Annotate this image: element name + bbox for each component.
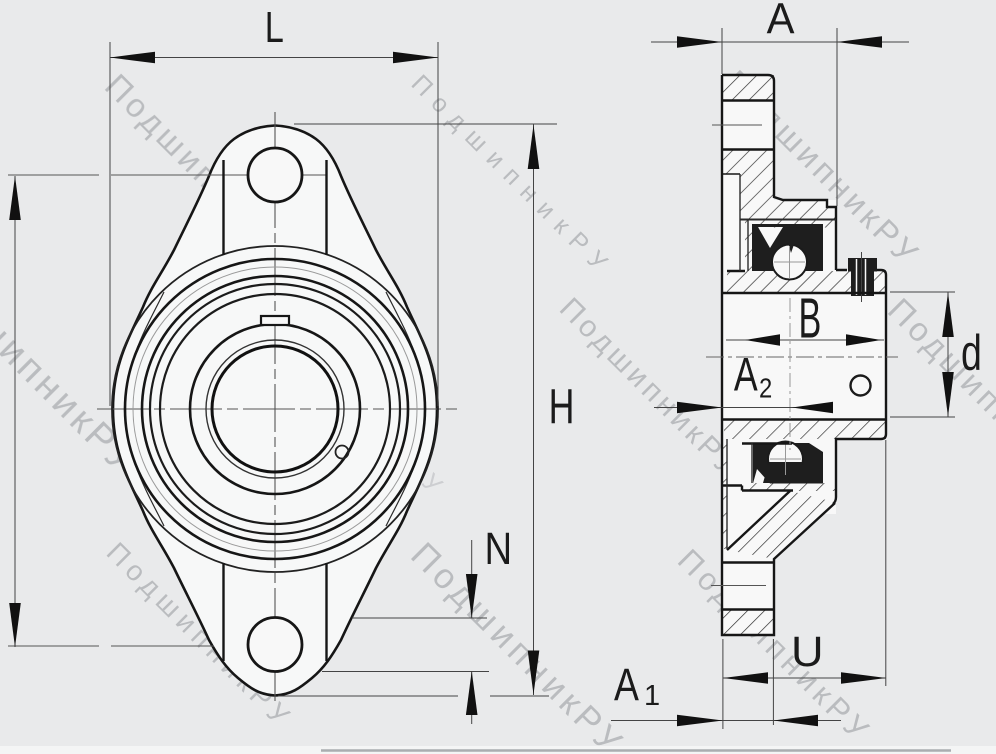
svg-text:1: 1 xyxy=(644,680,660,712)
svg-text:d: d xyxy=(961,326,982,381)
svg-text:L: L xyxy=(265,3,284,52)
svg-text:A: A xyxy=(614,660,639,710)
svg-text:N: N xyxy=(485,523,513,574)
svg-text:U: U xyxy=(791,628,824,676)
svg-text:A: A xyxy=(734,348,758,401)
svg-text:2: 2 xyxy=(759,372,772,404)
svg-text:A: A xyxy=(767,0,795,44)
svg-text:B: B xyxy=(799,285,822,349)
svg-text:H: H xyxy=(549,380,575,435)
